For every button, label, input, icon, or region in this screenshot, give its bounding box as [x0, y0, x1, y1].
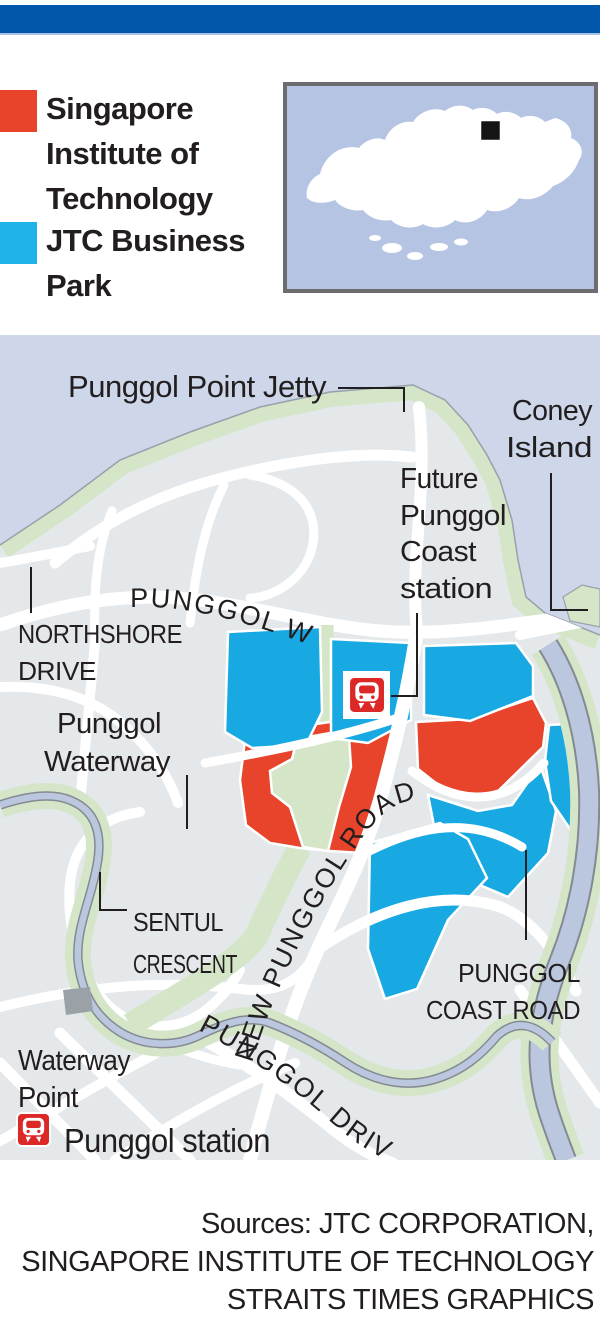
- southern-islet: [430, 243, 448, 251]
- southern-islet: [382, 243, 402, 253]
- southern-islet: [369, 235, 381, 241]
- singapore-silhouette: [287, 86, 594, 289]
- sit-legend-line: Singapore: [46, 86, 213, 131]
- label-coney: Island: [506, 432, 592, 464]
- label-sentul-crescent: CRESCENT: [133, 949, 237, 979]
- jtc-legend-label: JTC Business Park: [46, 218, 245, 308]
- location-marker-icon: [480, 120, 501, 141]
- label-punggol-waterway: Waterway: [44, 746, 171, 778]
- sit-legend-line: Technology: [46, 176, 213, 221]
- sources-line: SINGAPORE INSTITUTE OF TECHNOLOGY: [21, 1243, 594, 1281]
- sit-legend-swatch: [0, 90, 37, 132]
- jtc-legend-line: Park: [46, 263, 245, 308]
- label-punggol-station: Punggol station: [64, 1122, 270, 1159]
- jtc-legend-line: JTC Business: [46, 218, 245, 263]
- label-northshore-drive: NORTHSHORE: [18, 619, 182, 649]
- sources-line: STRAITS TIMES GRAPHICS: [21, 1281, 594, 1319]
- label-future-station: Coast: [400, 536, 476, 568]
- label-punggol-waterway: Punggol: [57, 708, 161, 740]
- sit-legend-label: Singapore Institute of Technology: [46, 86, 213, 221]
- jtc-legend-swatch: [0, 222, 37, 264]
- header-bar: [0, 5, 600, 35]
- label-coney: Coney: [512, 395, 593, 427]
- label-waterway-point: Point: [18, 1082, 78, 1114]
- mrt-icon-future-punggol-coast: [349, 677, 385, 713]
- label-northshore-drive: DRIVE: [18, 656, 96, 686]
- ne-islet: [524, 121, 546, 135]
- sources-line: Sources: JTC CORPORATION,: [21, 1205, 594, 1243]
- waterway-point-building: [63, 987, 93, 1015]
- mrt-icon-punggol-station: [17, 1113, 50, 1146]
- sit-legend-line: Institute of: [46, 131, 213, 176]
- label-punggol-coast-road: COAST ROAD: [426, 995, 580, 1025]
- label-punggol-point-jetty: Punggol Point Jetty: [68, 369, 327, 404]
- label-future-station: station: [400, 573, 492, 605]
- label-waterway-point: Waterway: [18, 1045, 131, 1077]
- southern-islet: [454, 239, 468, 246]
- label-sentul-crescent: SENTUL: [133, 907, 223, 937]
- punggol-map: Punggol Point Jetty Coney Island Future …: [0, 335, 600, 1160]
- southern-islet: [407, 252, 423, 260]
- label-punggol-coast-road: PUNGGOL: [458, 958, 580, 988]
- label-future-station: Punggol: [400, 500, 506, 532]
- sources-credit: Sources: JTC CORPORATION, SINGAPORE INST…: [21, 1205, 594, 1319]
- singapore-inset-map: [283, 82, 598, 293]
- label-future-station: Future: [400, 463, 478, 495]
